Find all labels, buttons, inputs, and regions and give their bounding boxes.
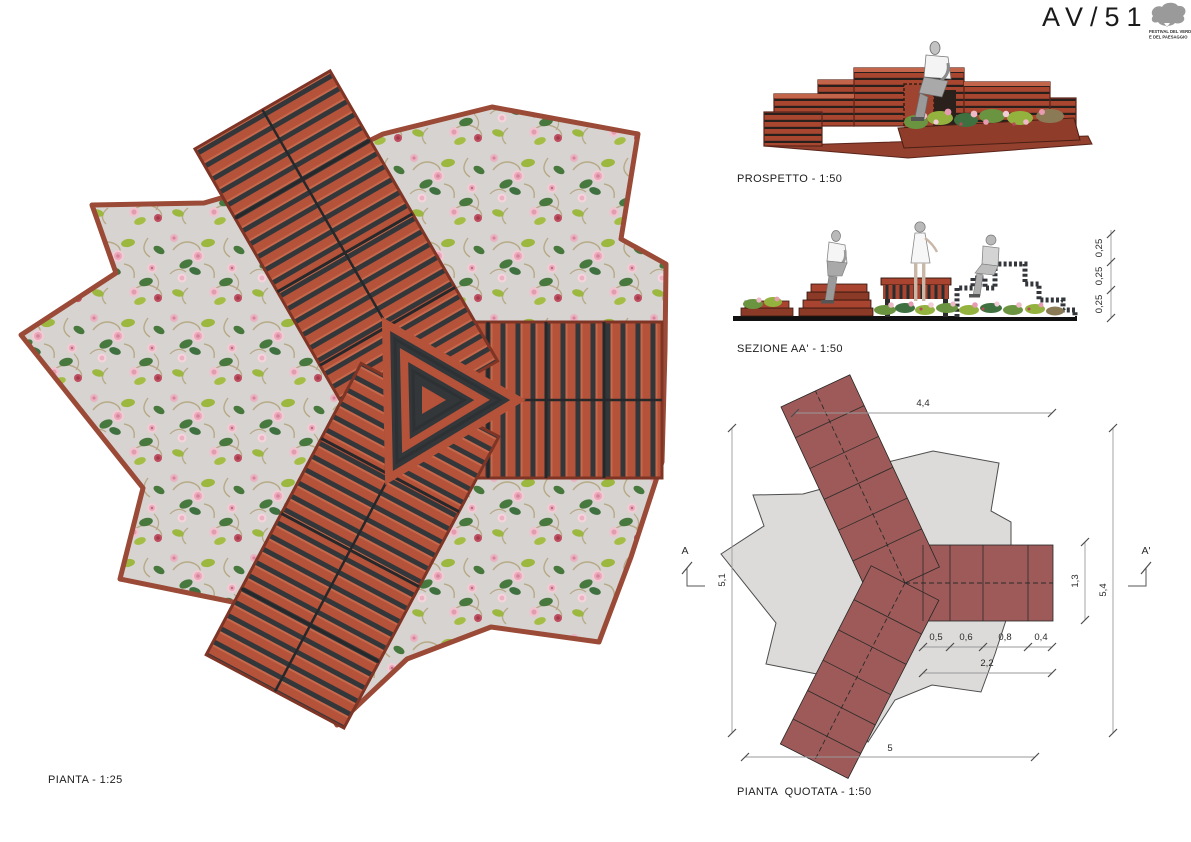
dim-cells-total: 2,2 bbox=[980, 658, 993, 669]
dim-height-1: 0,25 bbox=[1094, 295, 1105, 314]
sezione-dimensions: 0,25 0,25 0,25 bbox=[1094, 230, 1115, 322]
logo-caption-line2: E DEL PAESAGGIO bbox=[1149, 35, 1188, 40]
pianta-quotata-label: PIANTA QUOTATA - 1:50 bbox=[737, 786, 872, 798]
prospetto-drawing bbox=[758, 38, 1092, 170]
dim-arm-width: 1,3 bbox=[1070, 574, 1081, 587]
sezione-drawing: 0,25 0,25 0,25 bbox=[733, 200, 1125, 336]
presentation-sheet: AV/51 FESTIVAL DEL VERDE E DEL PAESAGGIO bbox=[0, 0, 1191, 842]
dim-height-2: 0,25 bbox=[1094, 267, 1105, 286]
dim-right-overall: 5,4 bbox=[1098, 583, 1109, 596]
dim-height-3: 0,25 bbox=[1094, 239, 1105, 258]
dim-cell-2: 0,6 bbox=[959, 632, 972, 643]
section-marker-a-label: A bbox=[681, 545, 688, 557]
logo-caption-line1: FESTIVAL DEL VERDE bbox=[1149, 29, 1191, 34]
section-marker-a-prime: A' bbox=[1128, 545, 1151, 586]
dim-bottom: 5 bbox=[887, 743, 892, 754]
tree-icon bbox=[1152, 3, 1186, 27]
dim-top: 4,4 bbox=[916, 398, 929, 409]
pianta-quotata-drawing: 4,4 5,1 5 1,3 5,4 bbox=[660, 390, 1170, 790]
section-marker-a: A bbox=[681, 545, 705, 586]
sezione-label: SEZIONE AA' - 1:50 bbox=[737, 343, 843, 355]
prospetto-label: PROSPETTO - 1:50 bbox=[737, 173, 842, 185]
festival-logo: FESTIVAL DEL VERDE E DEL PAESAGGIO bbox=[1144, 0, 1190, 44]
section-marker-a-prime-label: A' bbox=[1141, 545, 1150, 557]
dim-cell-1: 0,5 bbox=[929, 632, 942, 643]
dim-left: 5,1 bbox=[717, 573, 728, 586]
pianta-plan-drawing bbox=[8, 70, 668, 760]
pianta-label: PIANTA - 1:25 bbox=[48, 774, 123, 786]
dim-cell-3: 0,8 bbox=[998, 632, 1011, 643]
sezione-seat-stack bbox=[799, 284, 873, 316]
sheet-title: AV/51 bbox=[1042, 2, 1149, 33]
dim-cell-4: 0,4 bbox=[1034, 632, 1047, 643]
